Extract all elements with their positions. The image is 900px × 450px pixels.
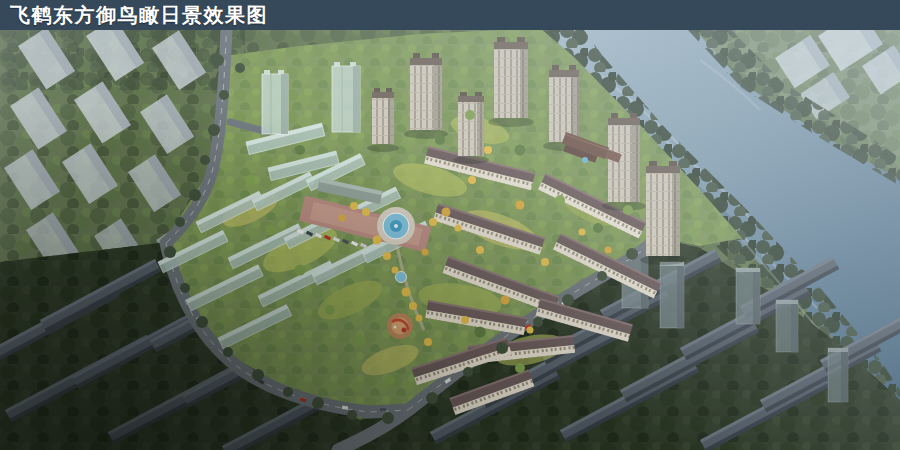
- title-text: 飞鹤东方御鸟瞰日景效果图: [10, 2, 268, 29]
- aerial-rendering-canvas: [0, 0, 900, 450]
- screenshot-root: 飞鹤东方御鸟瞰日景效果图: [0, 0, 900, 450]
- atmosphere-overlay: [0, 0, 900, 450]
- title-bar: 飞鹤东方御鸟瞰日景效果图: [0, 0, 900, 30]
